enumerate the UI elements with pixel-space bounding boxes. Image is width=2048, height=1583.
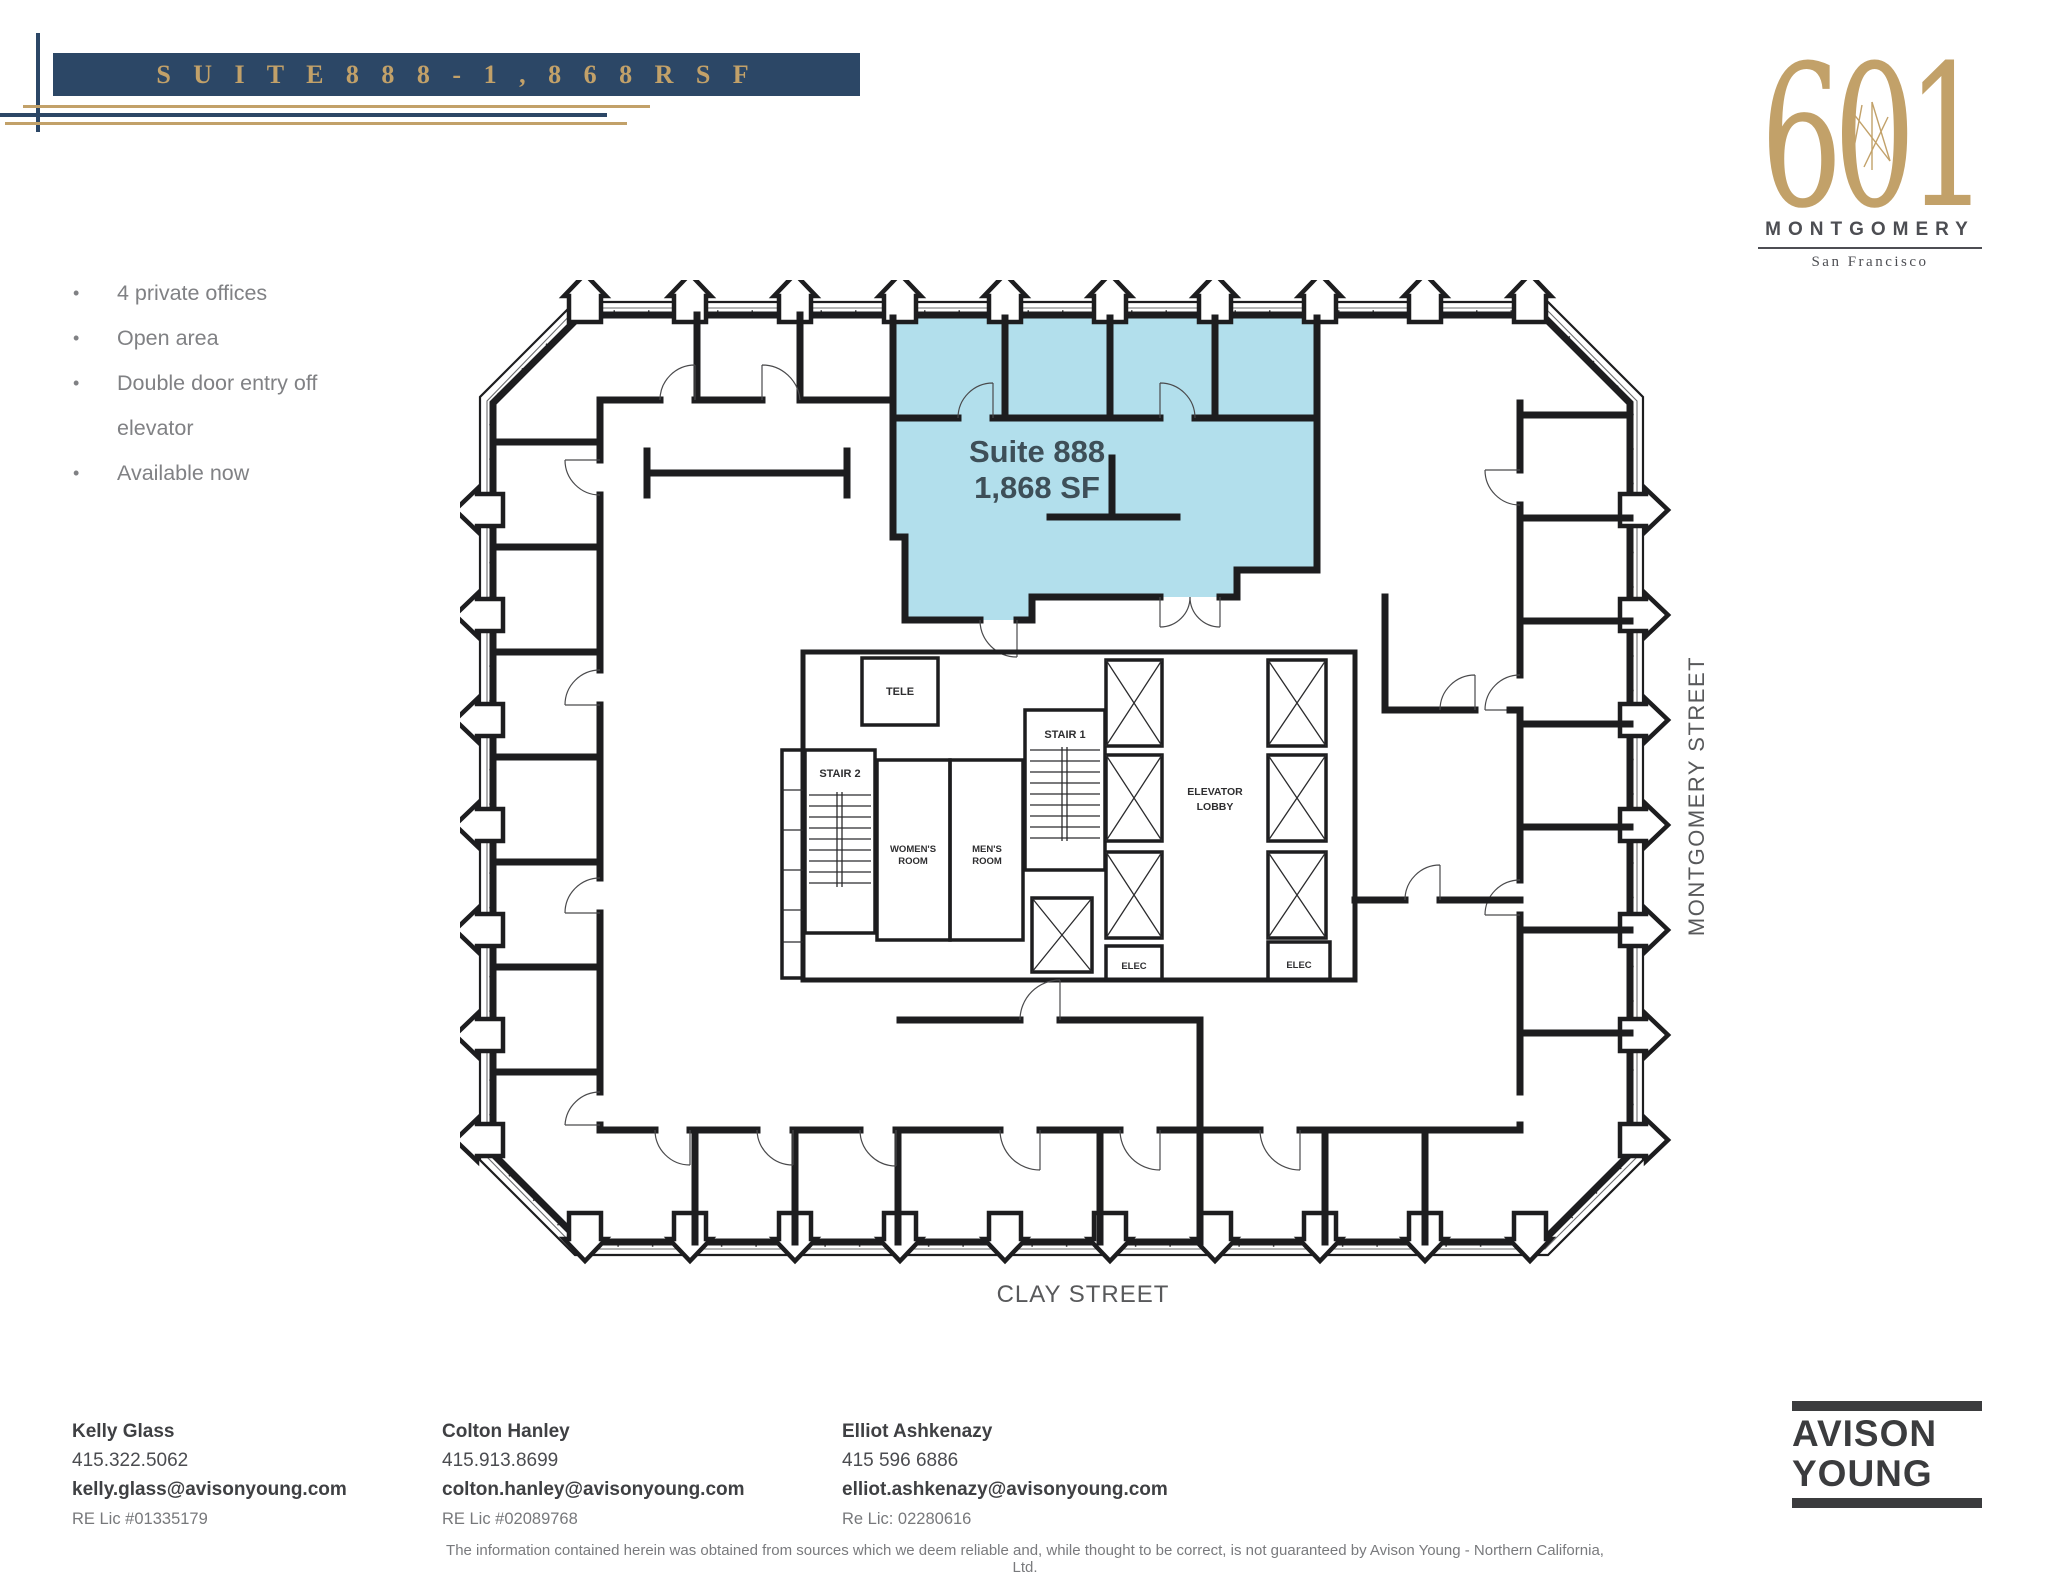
right-office-walls bbox=[1485, 403, 1630, 1130]
suite-name-label: Suite 888 bbox=[969, 434, 1105, 469]
suite-888-region[interactable] bbox=[893, 318, 1317, 620]
highlight-item: 4 private offices bbox=[55, 271, 385, 316]
contact-name: Colton Hanley bbox=[442, 1417, 745, 1446]
mens-room-label: MEN'S bbox=[972, 844, 1002, 855]
broker-logo-bar-top bbox=[1792, 1401, 1982, 1411]
building-logo-city: San Francisco bbox=[1752, 254, 1988, 271]
header-navy-rule bbox=[0, 113, 607, 117]
contact-phone: 415 596 6886 bbox=[842, 1446, 1168, 1475]
contact-email[interactable]: colton.hanley@avisonyoung.com bbox=[442, 1475, 745, 1504]
page-title: S U I T E 8 8 8 - 1 , 8 6 8 R S F bbox=[156, 60, 756, 90]
stair2-treads bbox=[809, 792, 871, 887]
left-office-doors bbox=[565, 460, 600, 1125]
contact-name: Kelly Glass bbox=[72, 1417, 347, 1446]
header-gold-rule-top bbox=[23, 105, 650, 108]
header-vertical-rule bbox=[36, 33, 40, 132]
contact-license: Re Lic: 02280616 bbox=[842, 1504, 1168, 1534]
stair1-treads bbox=[1030, 747, 1100, 841]
top-left-office-walls bbox=[600, 315, 893, 495]
clay-street-label: CLAY STREET bbox=[997, 1281, 1170, 1309]
contact-card: Elliot Ashkenazy 415 596 6886 elliot.ash… bbox=[842, 1417, 1168, 1534]
svg-text:ROOM: ROOM bbox=[972, 856, 1002, 867]
highlight-item: Available now bbox=[55, 451, 385, 496]
svg-text:ROOM: ROOM bbox=[898, 856, 928, 867]
montgomery-street-label: MONTGOMERY STREET bbox=[1684, 656, 1710, 936]
elec-room-label-right: ELEC bbox=[1286, 960, 1311, 971]
stair1-label: STAIR 1 bbox=[1044, 729, 1085, 741]
elevator-lobby-label: ELEVATOR bbox=[1187, 786, 1243, 798]
highlight-item: Double door entry off elevator bbox=[55, 361, 385, 451]
contact-license: RE Lic #02089768 bbox=[442, 1504, 745, 1534]
womens-room-label: WOMEN'S bbox=[890, 844, 936, 855]
floor-plan: Suite 888 1,868 SF TELE STAIR 2 STAIR 1 … bbox=[460, 280, 1700, 1340]
building-logo-name: MONTGOMERY bbox=[1752, 219, 1988, 241]
suite-area-label: 1,868 SF bbox=[974, 470, 1100, 505]
contact-license: RE Lic #01335179 bbox=[72, 1504, 347, 1534]
header-gold-rule-bottom bbox=[5, 122, 627, 125]
broker-logo-line2: YOUNG bbox=[1792, 1454, 1982, 1494]
bottom-office-walls bbox=[600, 1020, 1520, 1242]
elec-room-label-left: ELEC bbox=[1121, 961, 1146, 972]
contact-phone: 415.913.8699 bbox=[442, 1446, 745, 1475]
building-logo-rule bbox=[1758, 247, 1982, 249]
building-logo: 601 MONTGOMERY San Francisco bbox=[1752, 55, 1988, 271]
building-logo-601-mark: 601 bbox=[1752, 55, 1988, 213]
stair2-label: STAIR 2 bbox=[819, 768, 860, 780]
left-office-walls bbox=[493, 400, 600, 1130]
broker-logo-line1: AVISON bbox=[1792, 1414, 1982, 1454]
contact-name: Elliot Ashkenazy bbox=[842, 1417, 1168, 1446]
highlight-list: 4 private offices Open area Double door … bbox=[55, 271, 385, 496]
contact-card: Colton Hanley 415.913.8699 colton.hanley… bbox=[442, 1417, 745, 1534]
broker-logo: AVISON YOUNG bbox=[1792, 1401, 1982, 1508]
header-banner: S U I T E 8 8 8 - 1 , 8 6 8 R S F bbox=[53, 53, 860, 96]
tele-room-label: TELE bbox=[886, 686, 914, 698]
contact-phone: 415.322.5062 bbox=[72, 1446, 347, 1475]
disclaimer-text: The information contained herein was obt… bbox=[440, 1542, 1610, 1576]
contact-card: Kelly Glass 415.322.5062 kelly.glass@avi… bbox=[72, 1417, 347, 1534]
broker-logo-bar-bottom bbox=[1792, 1498, 1982, 1508]
contact-email[interactable]: kelly.glass@avisonyoung.com bbox=[72, 1475, 347, 1504]
svg-text:LOBBY: LOBBY bbox=[1197, 801, 1234, 813]
highlight-item: Open area bbox=[55, 316, 385, 361]
contact-email[interactable]: elliot.ashkenazy@avisonyoung.com bbox=[842, 1475, 1168, 1504]
